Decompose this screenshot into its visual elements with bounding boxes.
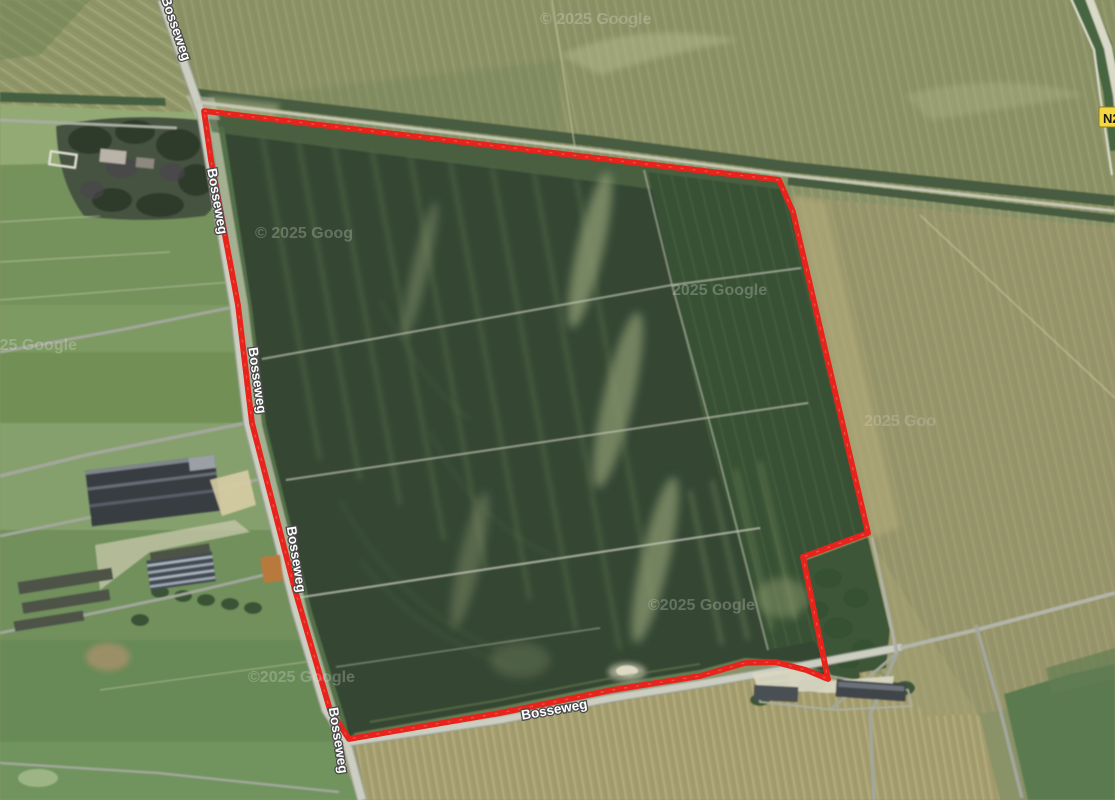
svg-text:2025 Goo: 2025 Goo bbox=[864, 413, 936, 430]
svg-text:N2: N2 bbox=[1103, 111, 1115, 126]
svg-text:© 2025 Goog: © 2025 Goog bbox=[255, 225, 353, 242]
svg-text:©2025 Google: ©2025 Google bbox=[0, 337, 77, 354]
svg-text:©2025 Google: ©2025 Google bbox=[648, 597, 755, 614]
svg-text:© 2025 Google: © 2025 Google bbox=[540, 11, 651, 28]
svg-text:©2025 Google: ©2025 Google bbox=[248, 669, 355, 686]
svg-text:2025 Google: 2025 Google bbox=[672, 282, 767, 299]
